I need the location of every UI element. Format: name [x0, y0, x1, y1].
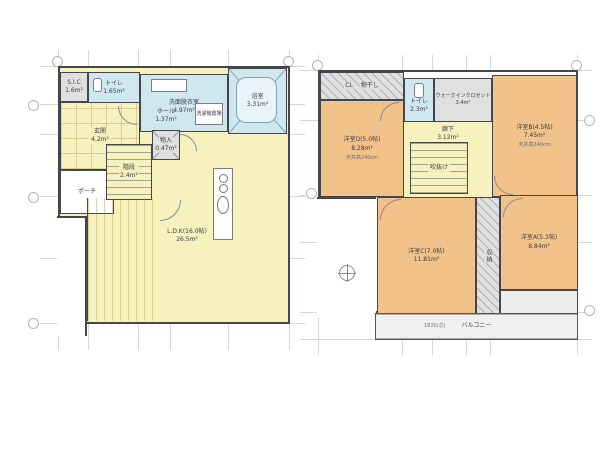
axis-marker [584, 305, 595, 316]
floor1-plan: S.I.C 1.6m² トイレ 1.65m² 洗面脱衣室 4.97m² 洗濯機置… [58, 66, 290, 324]
bedroom-c-label: 洋室C(7.0帖) 11.81m² [408, 248, 444, 264]
closet-center: 収納 [476, 197, 500, 315]
balcony-upper [500, 290, 578, 315]
closet-strip: CL 物干し [320, 72, 404, 100]
door-arc [160, 200, 181, 221]
washer-box: 洗濯機置場 [195, 103, 223, 125]
balcony-dim-label: 1820(芯) [424, 323, 446, 330]
toilet-fixture-icon [414, 83, 424, 98]
bedroom-a-label: 洋室A(5.3帖) 8.84m² [521, 234, 557, 250]
room-wic-label: ウォークインクロゼット 3.4m² [435, 93, 490, 107]
ldk-label: L.D.K(16.0帖) 26.5m² [152, 228, 222, 244]
bedroom-d-label: 洋室D(5.0帖) 8.28m² [344, 136, 381, 152]
floor2-plan: CL 物干し 洋室D(5.0帖) 8.28m² 天井高240cm トイレ 2.3… [318, 70, 578, 313]
room-sic-label: S.I.C 1.6m² [65, 79, 83, 95]
closet-strip-label: CL [344, 82, 354, 90]
bedroom-b-note: 天井高240cm [518, 141, 550, 148]
plan-cutout [57, 216, 87, 336]
porch-label: ポーチ [78, 188, 96, 196]
bedroom-d-note: 天井高240cm [346, 154, 378, 161]
vanity-fixture-icon [151, 79, 187, 92]
axis-marker [28, 100, 39, 111]
kitchen-sink-icon [217, 196, 229, 214]
room-toilet-1f-label: トイレ 1.65m² [103, 80, 125, 96]
stove-burner-icon [219, 184, 228, 193]
room-toilet-1f: トイレ 1.65m² [88, 72, 140, 104]
door-arc [180, 134, 197, 151]
toilet-fixture-icon [93, 78, 102, 92]
deck-flooring [87, 198, 160, 321]
storage-label: 物入 0.47m² [155, 137, 177, 153]
hall-2f-label: 廊下 3.12m² [437, 126, 459, 142]
room-wic: ウォークインクロゼット 3.4m² [434, 78, 492, 122]
floorplan-canvas: S.I.C 1.6m² トイレ 1.65m² 洗面脱衣室 4.97m² 洗濯機置… [0, 0, 600, 449]
storage-box: 物入 0.47m² [152, 130, 180, 160]
room-bath-label: 浴室 3.31m² [247, 93, 269, 109]
room-sic: S.I.C 1.6m² [60, 72, 88, 102]
plan-cutout [317, 197, 376, 318]
stairs-1f-label: 階段 2.4m² [119, 164, 139, 180]
stairs-1f: 階段 2.4m² [106, 144, 152, 200]
stairs-2f: 吹抜け [410, 142, 468, 194]
room-bath: 浴室 3.31m² [228, 68, 287, 134]
drying-space-label: 物干し [360, 82, 380, 90]
void-label: 吹抜け [428, 164, 450, 172]
axis-marker [28, 318, 39, 329]
balcony-label: バルコニー [462, 322, 492, 330]
closet-center-label: 収納 [484, 249, 492, 263]
bedroom-b-label: 洋室B(4.5帖) 7.45m² [516, 124, 552, 140]
hall-1f-label: ホール 1.37m² [144, 108, 188, 124]
stove-burner-icon [219, 174, 228, 183]
balcony-strip: 1820(芯) バルコニー [375, 313, 578, 340]
washer-box-label: 洗濯機置場 [196, 111, 221, 118]
axis-marker [584, 115, 595, 126]
axis-marker [28, 192, 39, 203]
axis-marker [306, 188, 317, 199]
room-toilet-2f: トイレ 2.3m² [404, 78, 434, 122]
room-genkan-label: 玄関 4.2m² [89, 128, 111, 144]
room-toilet-2f-label: トイレ 2.3m² [410, 98, 428, 114]
compass-icon [339, 265, 355, 281]
